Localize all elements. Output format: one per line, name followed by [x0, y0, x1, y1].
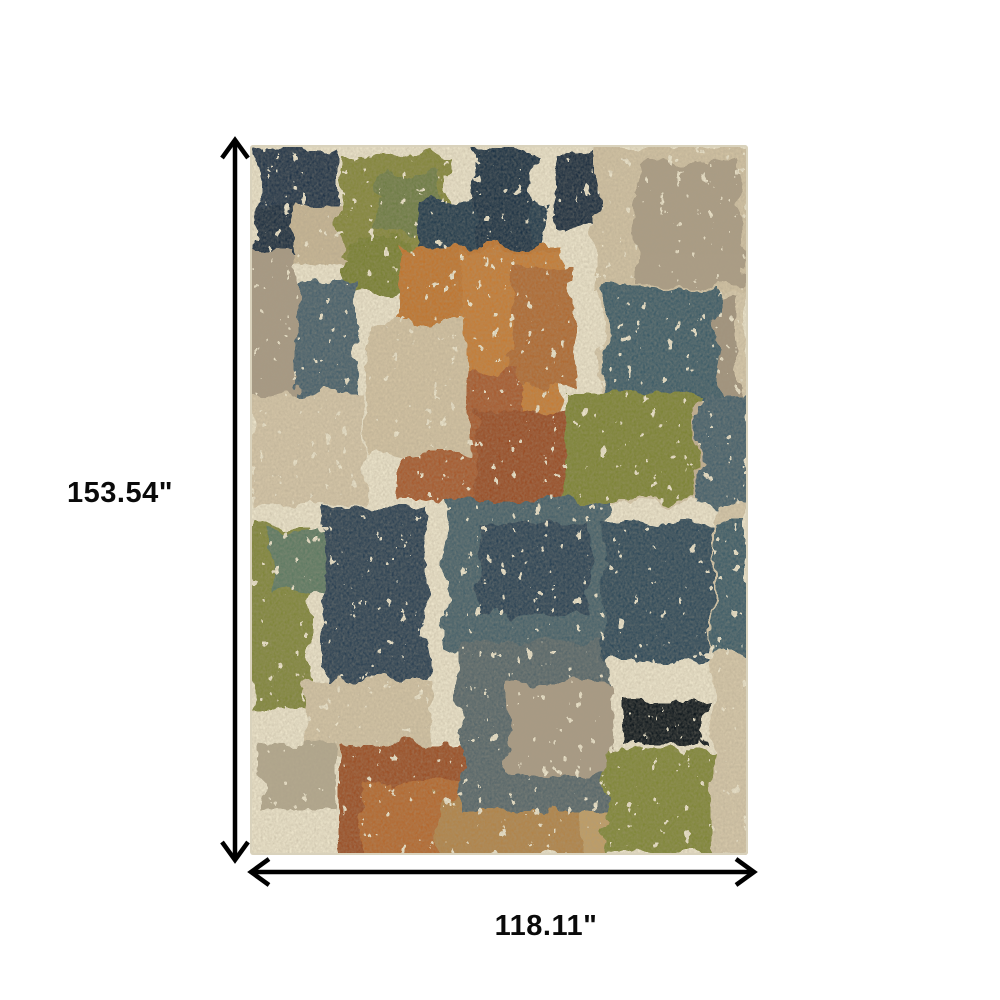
rug-image	[250, 145, 748, 855]
height-dimension-label: 153.54"	[30, 477, 210, 510]
product-dimension-diagram: 153.54" 118.11"	[0, 0, 1000, 1000]
width-arrow	[251, 859, 754, 885]
rug-grain-texture	[250, 145, 748, 855]
height-arrow	[222, 140, 248, 860]
width-dimension-label: 118.11"	[446, 910, 646, 943]
